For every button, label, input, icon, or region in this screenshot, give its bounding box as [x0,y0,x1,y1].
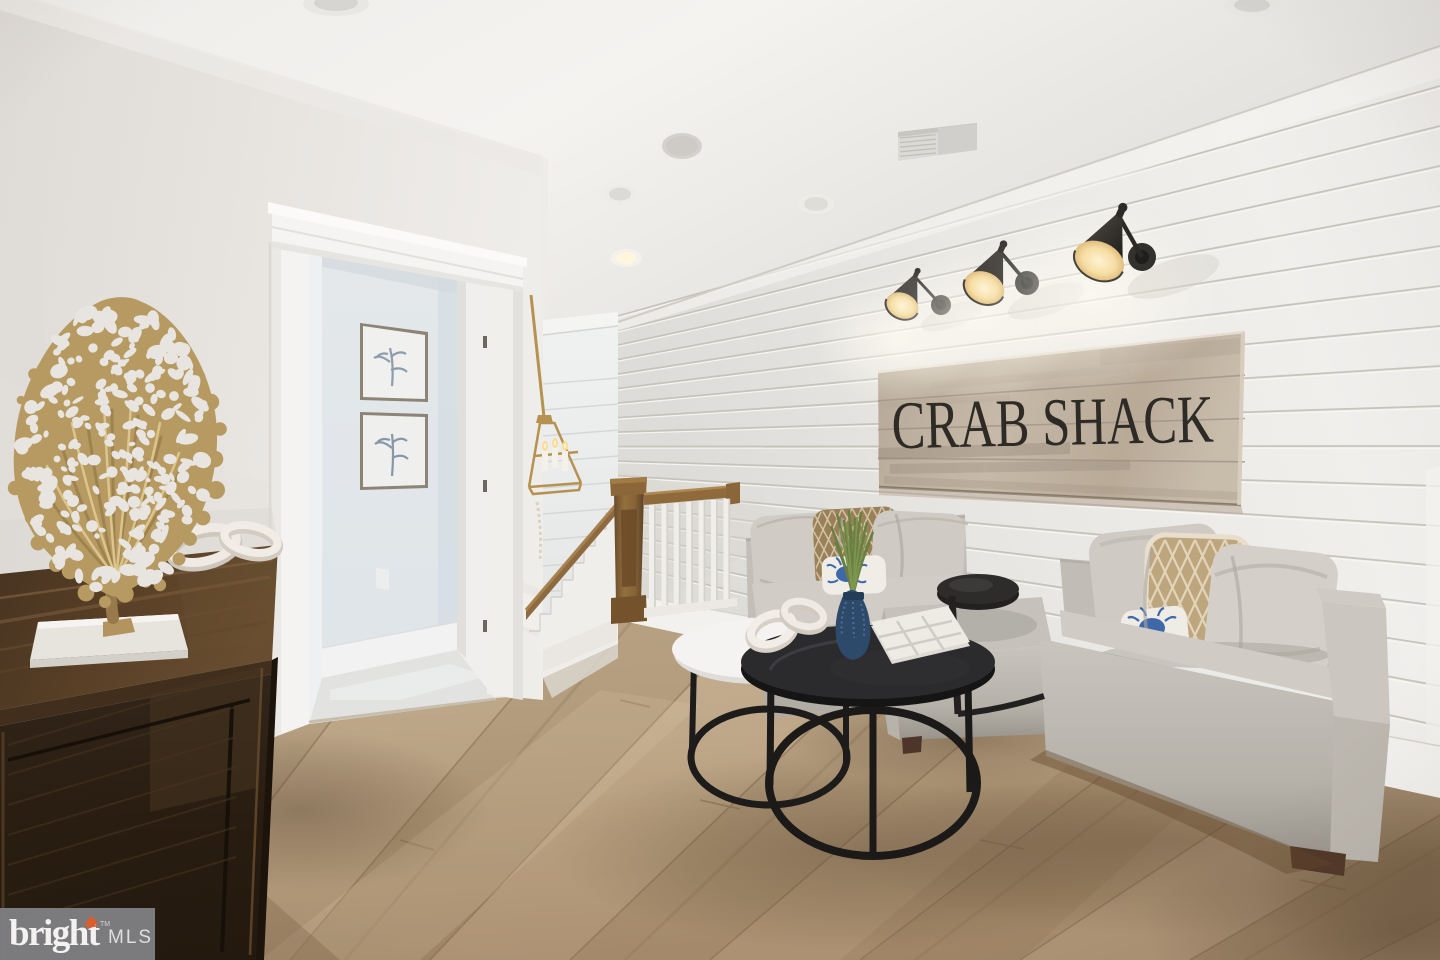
svg-text:bright: bright [9,913,101,954]
svg-text:MLS: MLS [108,927,153,948]
